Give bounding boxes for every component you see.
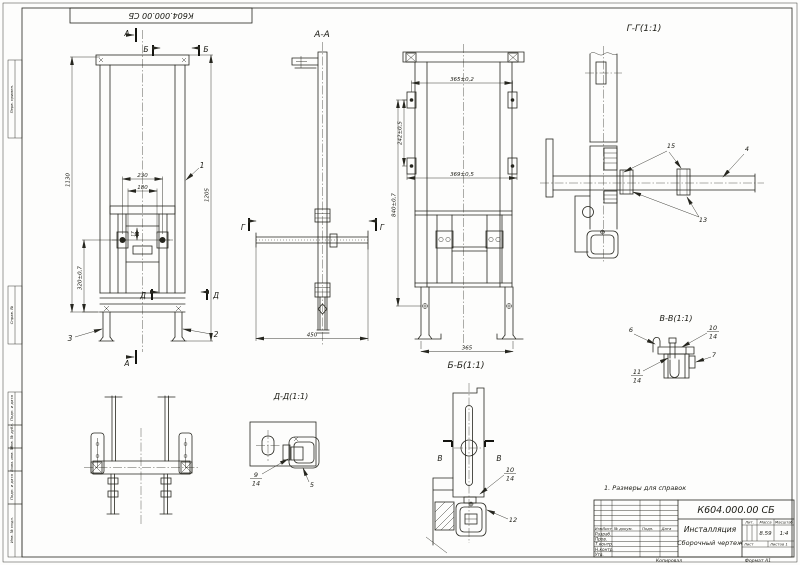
dim-320: 320±0,7: [78, 266, 84, 290]
dim-840: 840±0,7: [392, 193, 398, 217]
callout-10b-num: 10: [506, 466, 514, 474]
section-mark-d-right: Д: [212, 291, 219, 300]
callout-7: 7: [712, 351, 717, 359]
corner-stamp: К604.000.00 СБ: [70, 8, 252, 23]
callout-12: 12: [509, 516, 517, 524]
dim-180: 180: [137, 185, 148, 191]
dd-callouts: 9 14 5: [250, 459, 314, 489]
tb-header-lit: Лит.: [744, 520, 754, 525]
tb-row-utv: Утв.: [595, 552, 604, 557]
dim-365: 365: [462, 346, 473, 352]
callout-4: 4: [745, 145, 749, 153]
section-mark-v-right: В: [496, 454, 501, 463]
callout-5: 5: [310, 481, 314, 489]
section-mark-a-top: А: [123, 29, 129, 38]
section-mark-g-left: Г: [241, 223, 246, 232]
section-mark-b-left: Б: [143, 45, 148, 54]
callout-13: 13: [699, 216, 707, 224]
tb-designation: К604.000.00 СБ: [697, 505, 775, 516]
view-section-aa: А-А Г Г 450: [241, 30, 385, 345]
section-bb-title: Б-Б(1:1): [447, 361, 484, 371]
tb-header-list: Лист: [743, 542, 754, 547]
view-section-bb: 365±0,2 242±0,5 369±0,5 840±0,7 365 Б-Б(…: [392, 44, 525, 371]
tb-header-masshtab: Масштаб: [775, 520, 794, 525]
tb-col-list: Лист: [601, 526, 612, 531]
title-block: К604.000.00 СБ Инсталляция Сборочный чер…: [594, 500, 794, 564]
tb-value-masshtab: 1:4: [780, 531, 789, 537]
section-dd-title: Д-Д(1:1): [273, 392, 309, 401]
border-label-podp-data-2: Подп. и дата: [9, 473, 14, 500]
border-label-inv-dubl: Инв. № дубл.: [9, 423, 14, 449]
view-section-dd: Д-Д(1:1) 9 14 5: [250, 392, 319, 489]
section-gg-title: Г-Г(1:1): [627, 24, 662, 34]
section-mark-d-left: Д: [139, 291, 146, 300]
drawing-canvas: Перв. примен. Справ. № Подп. и дата Инв.…: [0, 0, 800, 565]
callout-10-num: 10: [709, 324, 717, 332]
dim-17: 17: [131, 231, 136, 237]
dim-242: 242±0,5: [398, 121, 404, 145]
callout-11-num: 11: [633, 368, 641, 376]
drawing-sheet: Перв. примен. Справ. № Подп. и дата Инв.…: [0, 0, 800, 565]
section-mark-b-right: Б: [203, 45, 208, 54]
foot-callouts: 10 14 12: [480, 466, 517, 524]
callout-9-den: 14: [252, 480, 260, 488]
callout-11-den: 14: [633, 377, 641, 385]
view-foot-detail: В В 10 14 12: [426, 383, 517, 553]
dim-365-02: 365±0,2: [450, 77, 474, 83]
dim-230: 230: [137, 173, 148, 179]
tb-value-massa: 8.59: [759, 531, 772, 537]
foot-section-marks: В В: [437, 441, 501, 463]
corner-stamp-text: К604.000.00 СБ: [128, 11, 194, 20]
tb-name: Инсталляция: [684, 525, 737, 534]
callout-1: 1: [200, 161, 205, 170]
border-label-inv-podl: Инв. № подл.: [9, 517, 14, 543]
drawing-note: 1. Размеры для справок: [604, 484, 686, 492]
callout-3: 3: [68, 334, 73, 343]
section-vv-title: В-В(1:1): [660, 314, 693, 323]
tb-header-massa: Масса: [759, 520, 772, 525]
dim-1130: 1130: [66, 173, 72, 187]
dim-450: 450: [307, 333, 318, 339]
view-section-vv: В-В(1:1) 6 10 14 7 11 14: [629, 314, 719, 385]
callout-10b-den: 14: [506, 475, 514, 483]
border-label-sprav-no: Справ. №: [9, 306, 14, 325]
callout-6: 6: [629, 326, 633, 334]
tb-header-listov: Листов 1: [769, 542, 788, 547]
section-mark-v-left: В: [437, 454, 442, 463]
border-label-perv-primen: Перв. примен.: [9, 85, 14, 114]
aa-section-marks: Г Г: [241, 218, 385, 232]
section-aa-title: А-А: [313, 30, 330, 40]
tb-col-podp: Подп.: [642, 526, 654, 531]
callout-10-den: 14: [709, 333, 717, 341]
section-mark-a-bottom: А: [123, 359, 129, 368]
tb-doc-type: Сборочный чертеж: [677, 539, 743, 547]
tb-copied-label: Копировал: [656, 558, 682, 564]
border-label-vzam-inv: Взам. инв. №: [9, 446, 14, 472]
dim-369: 369±0,5: [450, 172, 474, 178]
view-front: 230 180 17 1130 320±0,7 1205 А А Б Б Д Д…: [66, 28, 220, 368]
tb-col-data: Дата: [661, 526, 673, 531]
section-mark-g-right: Г: [380, 223, 385, 232]
callout-2: 2: [214, 330, 219, 339]
callout-15: 15: [667, 142, 675, 150]
border-label-podp-data-1: Подп. и дата: [9, 394, 14, 421]
callout-9-num: 9: [254, 471, 258, 479]
dim-1205: 1205: [205, 188, 211, 202]
border-cells: Перв. примен. Справ. № Подп. и дата Инв.…: [8, 60, 22, 557]
view-bottom: [84, 396, 199, 524]
bb-dimensions: 365±0,2 242±0,5 369±0,5 840±0,7 365: [392, 77, 518, 352]
tb-format-label: Формат А1: [745, 558, 771, 564]
sheet-frame: Перв. примен. Справ. № Подп. и дата Инв.…: [3, 3, 797, 562]
aa-dimension: 450: [256, 247, 368, 341]
view-section-gg: Г-Г(1:1) 15 4 13: [540, 24, 764, 263]
tb-col-dokum: № докум.: [613, 526, 633, 531]
